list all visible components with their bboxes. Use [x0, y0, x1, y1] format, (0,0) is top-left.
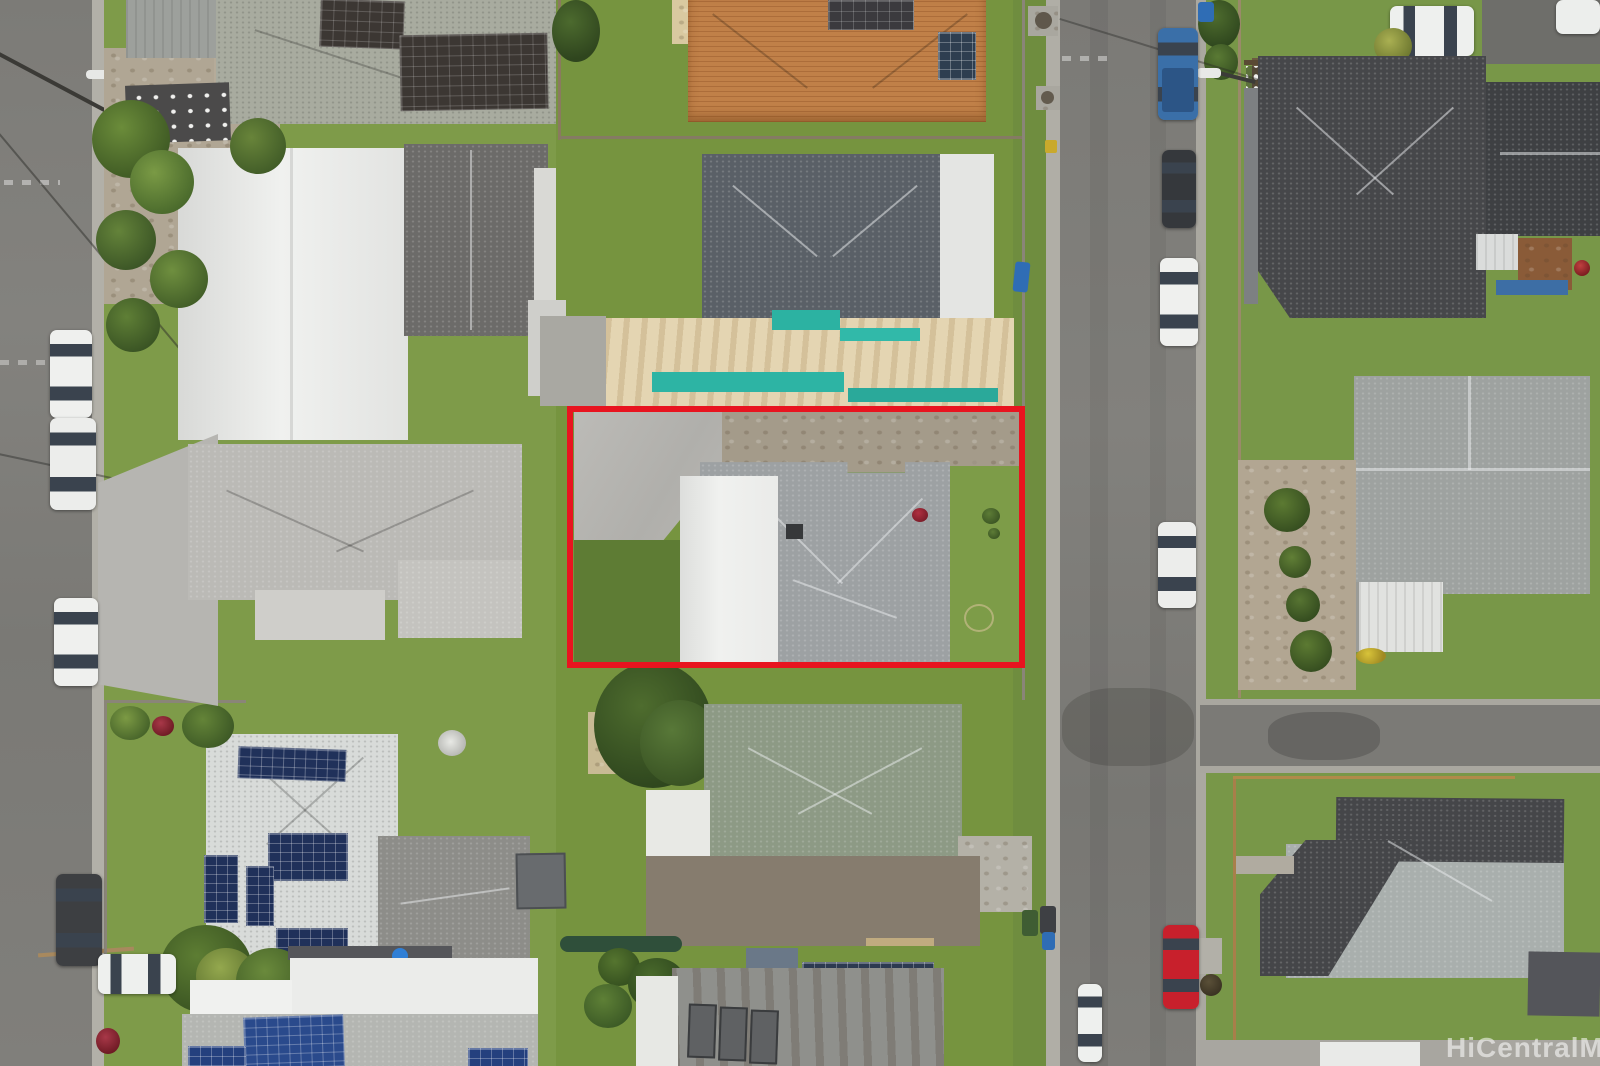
- red-car: [1163, 925, 1199, 1009]
- white-car: [1158, 522, 1196, 608]
- neighbor-garage-roof: [255, 590, 385, 640]
- teal-strip-3: [652, 372, 844, 392]
- white-metal-roof-house: [178, 148, 408, 440]
- palm-tree: [150, 250, 208, 308]
- blue-trash-bin: [1042, 932, 1055, 950]
- white-structure-bottom: [1320, 1042, 1420, 1066]
- round-shrub: [1279, 546, 1311, 578]
- charcoal-house-d-roof: [1486, 82, 1600, 236]
- tire-streak-1: [1090, 0, 1108, 1066]
- palm-tree: [106, 298, 160, 352]
- white-car: [50, 418, 96, 510]
- solar-array-a1: [319, 0, 405, 49]
- patio-table: [749, 1010, 779, 1065]
- right-street-curb-right: [1196, 0, 1206, 1066]
- red-object: [1574, 260, 1590, 276]
- fence-horizontal: [560, 136, 1025, 139]
- fence-horizontal-sw: [104, 700, 246, 703]
- fence-east-rusty-v: [1233, 776, 1236, 1066]
- fence-east-rusty-h: [1233, 776, 1515, 779]
- solar-array-b2: [268, 833, 348, 881]
- garden-flowers: [110, 706, 150, 740]
- blue-tarp: [1496, 280, 1568, 295]
- solar-array-b1: [237, 746, 346, 782]
- concrete-by-deck: [540, 316, 606, 406]
- white-awning: [1356, 582, 1443, 652]
- concrete-pad-f: [1198, 938, 1222, 974]
- fence-vertical-sw: [104, 700, 107, 960]
- solar-array-orange-2: [938, 32, 976, 80]
- streetlight-head-right: [1197, 68, 1221, 78]
- palm-tree: [230, 118, 286, 174]
- white-car: [50, 330, 92, 418]
- white-roof-bottom-1: [290, 958, 538, 1018]
- right-street-dashes: [1062, 56, 1110, 61]
- garden-bush: [182, 704, 234, 748]
- white-car: [54, 598, 98, 686]
- house-e-ridge-v: [1468, 376, 1471, 470]
- cross-street-curb-bottom: [1200, 766, 1600, 773]
- path-tan: [866, 938, 934, 946]
- gray-house-e-roof: [1354, 376, 1590, 594]
- palm-tree: [130, 150, 194, 214]
- round-shrub: [1264, 488, 1310, 532]
- white-shed-roof: [646, 790, 710, 858]
- solar-array-orange-1: [828, 0, 914, 30]
- mls-watermark: HiCentralMLS: [1446, 1032, 1600, 1064]
- metal-roof-small: [126, 0, 218, 58]
- manhole-1: [1035, 12, 1052, 29]
- blue-trash-bin: [1012, 261, 1030, 292]
- neighbor-roof-lower: [398, 560, 522, 638]
- solar-array-a2: [399, 33, 548, 112]
- white-trim-strip: [534, 168, 556, 316]
- black-car: [1162, 150, 1196, 228]
- patio-table: [687, 1004, 717, 1059]
- subject-property-boundary: [567, 406, 1025, 668]
- path-f: [1236, 856, 1294, 874]
- solar-array-c2: [188, 1046, 246, 1066]
- left-street-lane-dashes-2: [0, 360, 46, 365]
- white-roof-ridge: [290, 148, 293, 440]
- hedge-bush: [584, 984, 632, 1028]
- white-car-driveway: [98, 954, 176, 994]
- house-e-ridge-h: [1354, 468, 1590, 471]
- gray-shingle-ridge: [470, 150, 472, 330]
- solar-array-c1: [243, 1014, 345, 1066]
- satellite-dish: [438, 730, 466, 756]
- gray-shingle-house-nw: [404, 144, 548, 336]
- palm-tree: [96, 210, 156, 270]
- teal-strip-1: [840, 328, 920, 341]
- blue-pickup-truck: [1158, 28, 1198, 120]
- garden-flowers-red: [152, 716, 174, 736]
- white-car: [1160, 258, 1198, 346]
- yellow-flowers: [1356, 648, 1386, 664]
- dark-gray-car: [56, 874, 102, 966]
- bottom-house-white-strip: [636, 976, 678, 1066]
- white-flat-roof-section: [940, 154, 994, 332]
- manhole-2: [1041, 91, 1054, 104]
- white-car-corner: [1556, 0, 1600, 34]
- patio-table: [718, 1007, 748, 1062]
- teal-strip-4: [848, 388, 998, 402]
- curb-marking-yellow: [1045, 140, 1057, 153]
- weathered-roof-wide: [646, 856, 980, 946]
- gray-roof-sw: [378, 836, 530, 964]
- truck-bed: [1162, 68, 1194, 112]
- aerial-photo: HiCentralMLS: [0, 0, 1600, 1066]
- small-tree-f: [1200, 974, 1222, 996]
- cross-street-asphalt: [1200, 705, 1600, 766]
- charcoal-house-c-roof: [1258, 56, 1486, 318]
- solar-array-c3: [468, 1048, 528, 1066]
- house-d-ridge: [1500, 152, 1600, 155]
- gray-trash-bin: [1040, 906, 1056, 934]
- red-flower-bush: [96, 1028, 120, 1054]
- garden-shed: [516, 853, 567, 910]
- dark-bush: [552, 0, 600, 62]
- cross-street-patch-dark: [1268, 712, 1380, 760]
- round-shrub: [1286, 588, 1320, 622]
- white-car-partial: [1078, 984, 1102, 1062]
- house-f-annex-roof: [1527, 951, 1600, 1016]
- white-shed-east: [1476, 234, 1518, 270]
- blue-trash-bin: [1198, 2, 1214, 22]
- green-trash-bin: [1022, 910, 1038, 936]
- solar-array-b4: [246, 866, 274, 926]
- asphalt-patch-dark: [1062, 688, 1194, 766]
- left-street-lane-dashes-1: [4, 180, 60, 185]
- teal-strip-2: [772, 310, 840, 330]
- solar-array-b3: [204, 855, 238, 923]
- house-c-gutter-walk: [1244, 88, 1258, 304]
- round-shrub: [1290, 630, 1332, 672]
